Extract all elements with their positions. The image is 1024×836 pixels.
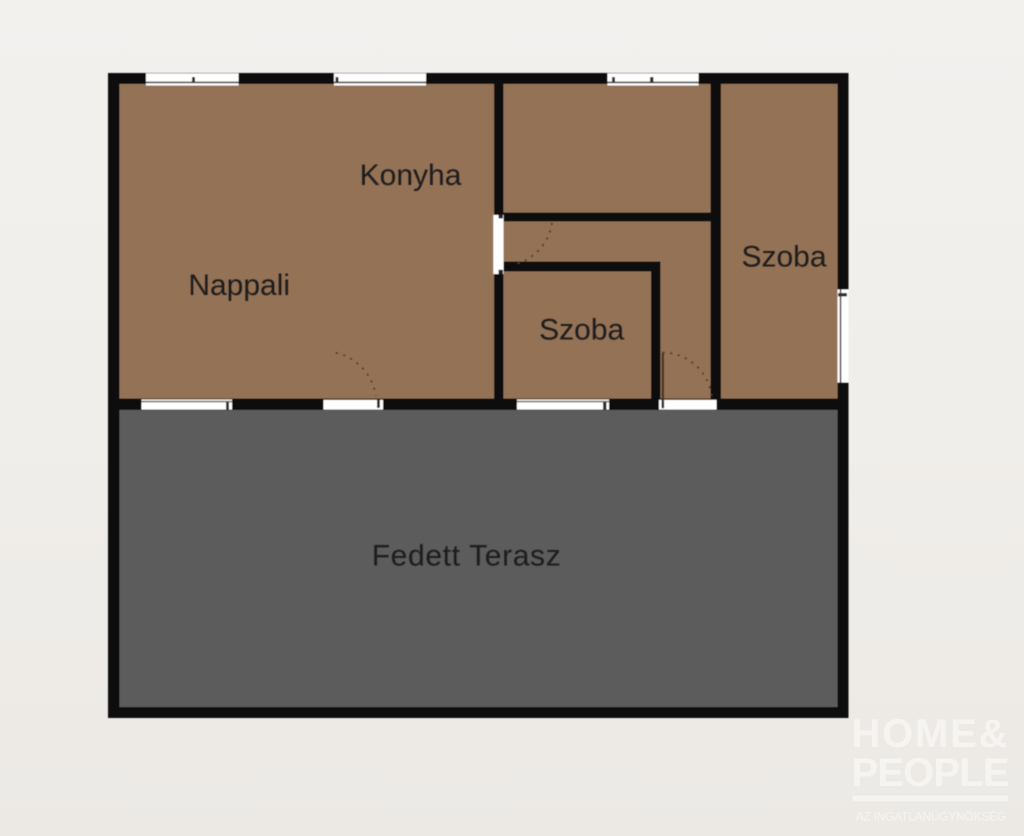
svg-text:PEOPLE: PEOPLE	[852, 751, 1010, 795]
svg-text:Konyha: Konyha	[360, 159, 462, 192]
svg-text:Fedett Terasz: Fedett Terasz	[372, 540, 561, 573]
svg-text:Szoba: Szoba	[741, 241, 826, 274]
svg-text:HOME&: HOME&	[852, 712, 1008, 756]
svg-text:Nappali: Nappali	[188, 269, 290, 302]
svg-text:AZ INGATLANÜGYNÖKSÉG: AZ INGATLANÜGYNÖKSÉG	[856, 809, 1007, 824]
svg-text:Szoba: Szoba	[539, 314, 624, 347]
